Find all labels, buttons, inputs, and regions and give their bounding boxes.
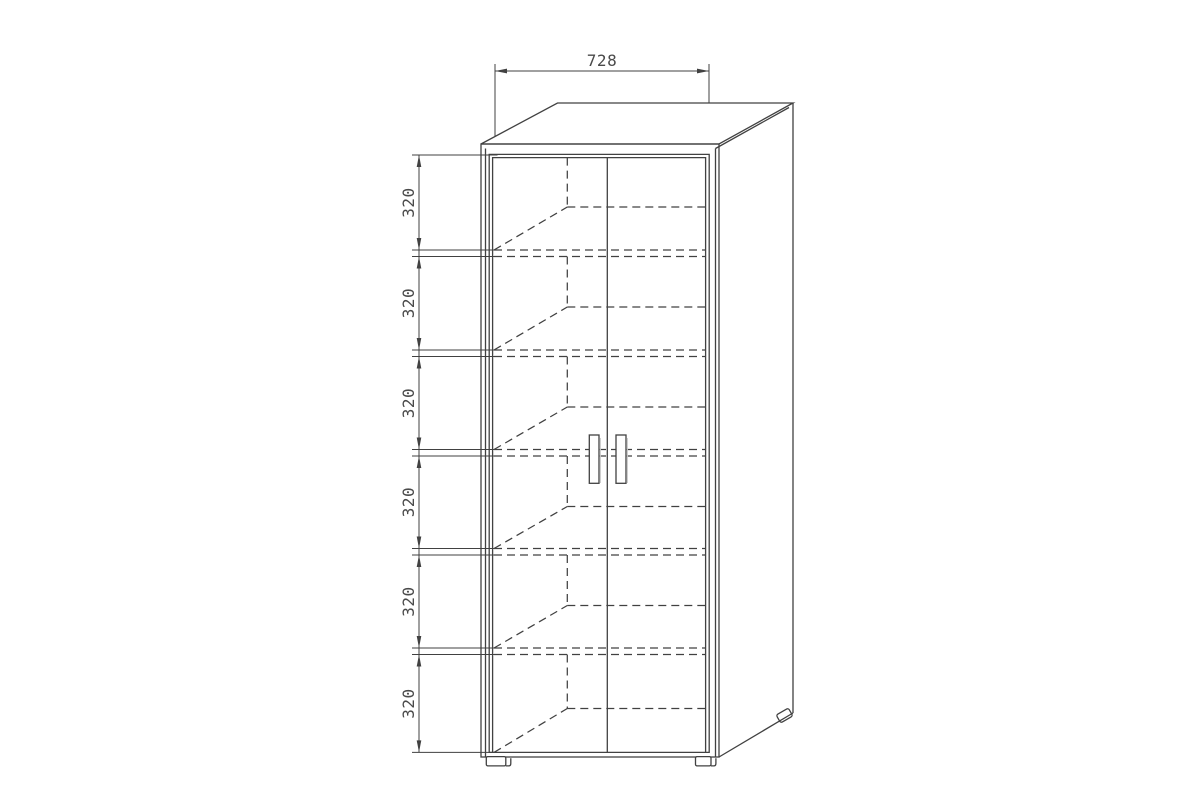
shelf-side-edge bbox=[494, 606, 567, 649]
arrowhead-down bbox=[417, 740, 422, 752]
spacing-dimension-label: 320 bbox=[399, 388, 418, 418]
shelf-side-edge bbox=[494, 507, 567, 549]
arrowhead-up bbox=[417, 155, 422, 167]
side-panel-bottom-edge bbox=[719, 713, 793, 757]
right-door-handle bbox=[616, 435, 626, 483]
arrowhead-up bbox=[417, 456, 422, 468]
shelf-side-edge bbox=[494, 307, 567, 350]
arrowhead-up bbox=[417, 357, 422, 369]
spacing-dimension-label: 320 bbox=[399, 187, 418, 217]
cabinet-top-face bbox=[481, 103, 793, 144]
arrowhead-up bbox=[417, 257, 422, 269]
front-right-foot bbox=[696, 757, 712, 766]
floor-side-edge bbox=[494, 709, 567, 753]
arrowhead-down bbox=[417, 537, 422, 549]
left-door-handle bbox=[589, 435, 599, 483]
drawing-canvas: 728 320 320 320 320 320 32 bbox=[0, 0, 1200, 800]
spacing-dimension-label: 320 bbox=[399, 487, 418, 517]
spacing-dimension-label: 320 bbox=[399, 586, 418, 616]
spacing-dimension-label: 320 bbox=[399, 288, 418, 318]
front-left-foot bbox=[486, 757, 506, 766]
front-feet bbox=[486, 757, 716, 766]
cabinet-technical-drawing: 728 320 320 320 320 320 32 bbox=[0, 0, 1200, 800]
shelf-side-edge bbox=[494, 207, 567, 250]
front-left-foot-depth bbox=[506, 758, 511, 766]
width-dimension-label: 728 bbox=[587, 51, 617, 70]
left-dimension-chain: 320 320 320 320 320 320 bbox=[399, 155, 498, 752]
arrowhead-up bbox=[417, 655, 422, 667]
arrowhead-left bbox=[495, 69, 507, 74]
cabinet-feet bbox=[776, 708, 793, 723]
arrowhead-down bbox=[417, 636, 422, 648]
arrowhead-down bbox=[417, 238, 422, 250]
arrowhead-down bbox=[417, 438, 422, 450]
arrowhead-down bbox=[417, 338, 422, 350]
arrowhead-up bbox=[417, 555, 422, 567]
arrowhead-right bbox=[697, 69, 709, 74]
shelf-side-edge bbox=[494, 407, 567, 450]
spacing-dimension-label: 320 bbox=[399, 688, 418, 718]
back-right-foot bbox=[776, 708, 793, 723]
front-right-foot-depth bbox=[711, 758, 716, 766]
cabinet-doors bbox=[489, 154, 709, 752]
